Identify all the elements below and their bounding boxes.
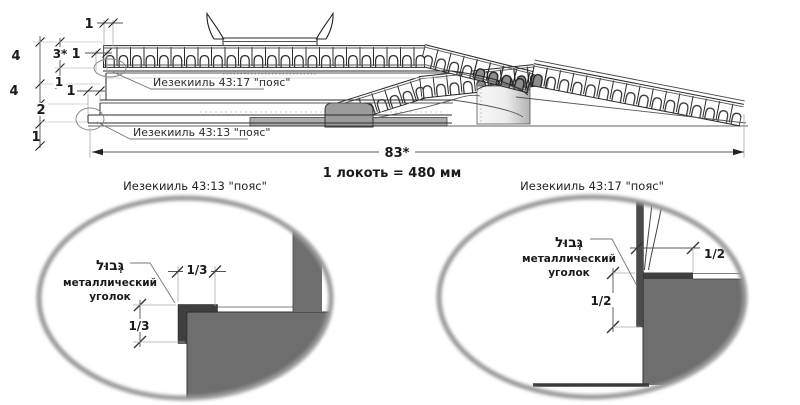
belt-4313-callout: Иезекииль 43:13 "пояс" — [97, 122, 270, 139]
detail-left-dim-h: 1/3 — [186, 263, 207, 277]
detail-left: Иезекииль 43:13 "пояс" 1/3 1/3 — [39, 179, 337, 405]
detail-right-title: Иезекииль 43:17 "пояс" — [520, 179, 664, 193]
technical-drawing-page: 4 4 2 1 3* 1 1 1 — [0, 0, 800, 405]
dim-inner-3: 3* — [53, 47, 68, 61]
dim-left-1: 1 — [31, 130, 40, 145]
detail-left-title: Иезекииль 43:13 "пояс" — [123, 179, 267, 193]
detail-right-material-1: металлический — [522, 253, 616, 265]
left-horn — [207, 14, 224, 40]
detail-left-block — [187, 312, 337, 405]
dim-top-1b: 1 — [71, 47, 80, 62]
detail-left-material-1: металлический — [63, 277, 157, 289]
left-railing — [103, 45, 425, 68]
detail-right-material-2: уголок — [548, 267, 590, 279]
ramp-railing — [530, 60, 745, 126]
right-horn — [317, 14, 334, 40]
altar-elevation-drawing: 4 4 2 1 3* 1 1 1 — [9, 14, 748, 182]
detail-right: Иезекииль 43:17 "пояс" 1/2 1/2 — [439, 179, 748, 397]
detail-right-labels: גְּבוּל металлический уголок — [522, 235, 637, 286]
metal-angle-bracket-right — [637, 200, 644, 327]
ezekiel-altar-drawing: 4 4 2 1 3* 1 1 1 — [0, 0, 800, 405]
belt-4317-callout: Иезекииль 43:17 "пояс" — [113, 72, 290, 89]
dim-inner-1: 1 — [55, 75, 63, 89]
detail-left-labels: גְּבוּל металлический уголок — [63, 258, 175, 303]
detail-right-dim-v: 1/2 — [590, 294, 611, 308]
detail-left-rim — [39, 198, 331, 398]
detail-right-hebrew: גְּבוּל — [555, 235, 583, 251]
dim-top-1c: 1 — [66, 84, 75, 99]
dim-left-4b: 4 — [9, 84, 18, 99]
detail-left-dim-v: 1/3 — [128, 319, 149, 333]
scale-note: 1 локоть = 480 мм — [323, 166, 461, 181]
dim-total-label: 83* — [385, 146, 410, 161]
metal-angle-cap-right — [643, 273, 693, 280]
dim-left-2: 2 — [36, 103, 45, 118]
belt-4317-label: Иезекииль 43:17 "пояс" — [153, 76, 290, 89]
belt-4313-label: Иезекииль 43:13 "пояс" — [133, 126, 270, 139]
detail-right-dim-h: 1/2 — [704, 247, 725, 261]
detail-left-material-2: уголок — [89, 291, 131, 303]
callout-ellipse-4313 — [76, 108, 104, 130]
dim-left-4a: 4 — [11, 49, 20, 64]
dim-top-1a: 1 — [84, 17, 93, 32]
detail-left-hebrew: גְּבוּל — [96, 258, 124, 274]
horn-curve-1 — [645, 204, 653, 270]
